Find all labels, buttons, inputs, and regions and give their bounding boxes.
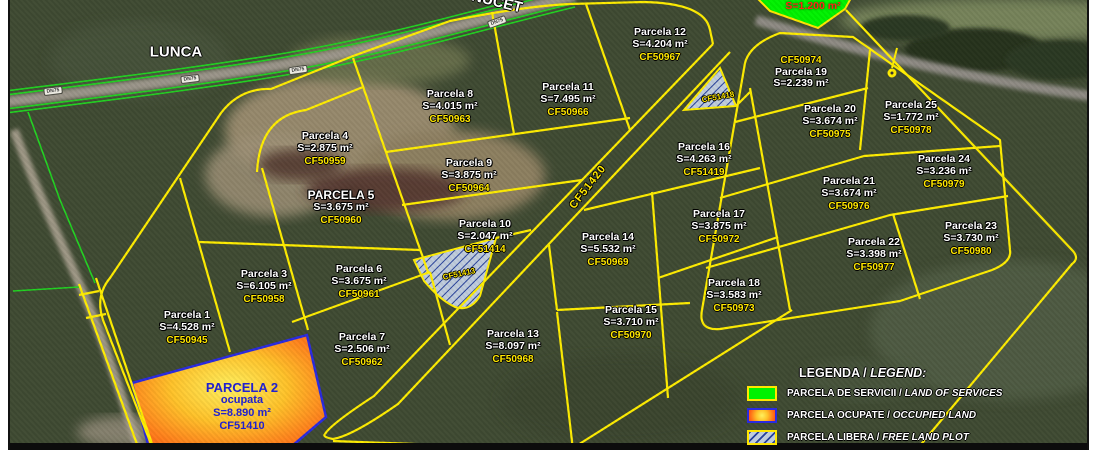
road-sign-dn75: DN75 bbox=[180, 74, 200, 84]
parcel-label-parcela-15: Parcela 15S=3.710 m²CF50970 bbox=[603, 305, 658, 342]
parcel-label-parcela-23: Parcela 23S=3.730 m²CF50980 bbox=[943, 221, 998, 258]
parcel-cf-text: CF50977 bbox=[846, 262, 901, 274]
parcel-cf-text: CF50961 bbox=[331, 289, 386, 301]
occupied-parcel-cf: CF51410 bbox=[206, 420, 278, 433]
parcel-nm-text: Parcela 24 bbox=[916, 154, 971, 166]
parcel-cf-text: CF50962 bbox=[334, 357, 389, 369]
parcel-nm-text: Parcela 9 bbox=[441, 158, 496, 170]
parcel-nm-text: Parcela 16 bbox=[676, 142, 731, 154]
parcel-ar-text: S=2.239 m² bbox=[773, 78, 828, 90]
parcel-ar-text: S=2.875 m² bbox=[297, 142, 352, 154]
parcel-label-parcela-13: Parcela 13S=8.097 m²CF50968 bbox=[485, 329, 540, 366]
occupied-parcel-name: PARCELA 2 bbox=[206, 381, 278, 394]
parcel-label-parcela-5: PARCELA 5S=3.675 m²CF50960 bbox=[308, 190, 375, 227]
parcel-cf-text: CF50964 bbox=[441, 183, 496, 195]
parcel-label-parcela-7: Parcela 7S=2.506 m²CF50962 bbox=[334, 332, 389, 369]
parcel-ar-text: S=3.236 m² bbox=[916, 165, 971, 177]
parcel-label-parcela-3: Parcela 3S=6.105 m²CF50958 bbox=[236, 269, 291, 306]
parcel-nm-text: Parcela 18 bbox=[706, 278, 761, 290]
parcel-cf-text: CF50975 bbox=[802, 129, 857, 141]
parcel-label-parcela-6: Parcela 6S=3.675 m²CF50961 bbox=[331, 264, 386, 301]
parcel-label-parcela-21: Parcela 21S=3.674 m²CF50976 bbox=[821, 176, 876, 213]
parcel-cf-text: CF50976 bbox=[821, 201, 876, 213]
parcel-ar-text: S=3.710 m² bbox=[603, 316, 658, 328]
parcel-ar-text: S=4.263 m² bbox=[676, 153, 731, 165]
legend-label-services: PARCELA DE SERVICII / LAND OF SERVICES bbox=[787, 388, 1002, 399]
legend-item-services: PARCELA DE SERVICII / LAND OF SERVICES bbox=[747, 386, 1002, 401]
parcel-ar-text: S=3.398 m² bbox=[846, 248, 901, 260]
parcel-nm-text: Parcela 22 bbox=[846, 237, 901, 249]
parcel-nm-text: Parcela 10 bbox=[457, 219, 512, 231]
parcel-ar-text: S=3.583 m² bbox=[706, 289, 761, 301]
parcel-label-parcela-12: Parcela 12S=4.204 m²CF50967 bbox=[632, 27, 687, 64]
parcel-ar-text: S=4.204 m² bbox=[632, 38, 687, 50]
parcel-ar-text: S=2.047 m² bbox=[457, 230, 512, 242]
parcel-ar-text: S=5.532 m² bbox=[580, 243, 635, 255]
parcel-nm-text: Parcela 4 bbox=[297, 131, 352, 143]
parcel-label-parcela-24: Parcela 24S=3.236 m²CF50979 bbox=[916, 154, 971, 191]
occupied-parcel-area: S=8.890 m² bbox=[206, 407, 278, 420]
parcel-label-parcela-10: Parcela 10S=2.047 m²CF51414 bbox=[457, 219, 512, 256]
parcel-nm-text: Parcela 17 bbox=[691, 209, 746, 221]
parcel-nm-text: Parcela 6 bbox=[331, 264, 386, 276]
parcel-ar-text: S=3.674 m² bbox=[821, 187, 876, 199]
parcel-nm-text: Parcela 7 bbox=[334, 332, 389, 344]
road-sign-dn75: DN75 bbox=[288, 65, 308, 76]
parcel-ar-text: S=8.097 m² bbox=[485, 340, 540, 352]
legend: LEGENDA / LEGEND: PARCELA DE SERVICII / … bbox=[747, 366, 1002, 450]
free-plot-label-cf51413: CF51413 bbox=[442, 266, 476, 282]
parcel-cf-text: CF51419 bbox=[676, 167, 731, 179]
parcel-ar-text: S=7.495 m² bbox=[540, 93, 595, 105]
parcel-ar-text: S=4.015 m² bbox=[422, 100, 477, 112]
parcel-cf-text: CF50967 bbox=[632, 52, 687, 64]
parcel-cf-text: CF50959 bbox=[297, 156, 352, 168]
parcel-label-parcela-14: Parcela 14S=5.532 m²CF50969 bbox=[580, 232, 635, 269]
parcel-label-parcela-17: Parcela 17S=3.875 m²CF50972 bbox=[691, 209, 746, 246]
parcel-cf-text: CF50945 bbox=[159, 335, 214, 347]
parcel-label-parcela-1: Parcela 1S=4.528 m²CF50945 bbox=[159, 310, 214, 347]
parcel-ar-text: S=3.675 m² bbox=[308, 201, 375, 213]
parcel-cf-text: CF50974 bbox=[773, 55, 828, 67]
left-frame-line bbox=[8, 0, 10, 450]
parcel-cf-text: CF50960 bbox=[308, 215, 375, 227]
parcel-ar-text: S=4.528 m² bbox=[159, 321, 214, 333]
parcel-label-parcela-25: Parcela 25S=1.772 m²CF50978 bbox=[883, 100, 938, 137]
parcel-nm-text: Parcela 11 bbox=[540, 82, 595, 94]
legend-swatch-services bbox=[747, 386, 777, 401]
parcel-ar-text: S=6.105 m² bbox=[236, 280, 291, 292]
parcel-nm-text: Parcela 15 bbox=[603, 305, 658, 317]
parcel-cf-text: CF50979 bbox=[916, 179, 971, 191]
parcel-label-parcela-22: Parcela 22S=3.398 m²CF50977 bbox=[846, 237, 901, 274]
parcel-ar-text: S=3.730 m² bbox=[943, 232, 998, 244]
free-plot-label-cf51418: CF51418 bbox=[701, 90, 735, 105]
road-sign-dn75: DN75 bbox=[43, 86, 63, 96]
parcel-nm-text: Parcela 8 bbox=[422, 89, 477, 101]
right-frame-margin bbox=[1089, 0, 1100, 450]
parcel-label-parcela-9: Parcela 9S=3.875 m²CF50964 bbox=[441, 158, 496, 195]
road-sign-dn75: DN75 bbox=[487, 15, 507, 29]
parcel-cf-text: CF50968 bbox=[485, 354, 540, 366]
parcel-cf-text: CF50973 bbox=[706, 303, 761, 315]
parcel-cf-text: CF50969 bbox=[580, 257, 635, 269]
parcel-cf-text: CF50958 bbox=[236, 294, 291, 306]
parcel-label-parcela-18: Parcela 18S=3.583 m²CF50973 bbox=[706, 278, 761, 315]
legend-label-free: PARCELA LIBERA / FREE LAND PLOT bbox=[787, 432, 969, 443]
legend-item-occupied: PARCELA OCUPATE / OCCUPIED LAND bbox=[747, 408, 1002, 423]
legend-swatch-occupied bbox=[747, 408, 777, 423]
legend-swatch-free bbox=[747, 430, 777, 445]
parcel-nm-text: Parcela 20 bbox=[802, 104, 857, 116]
parcel-ar-text: S=2.506 m² bbox=[334, 343, 389, 355]
left-frame-margin bbox=[0, 0, 8, 450]
parcel-cf-text: CF50980 bbox=[943, 246, 998, 258]
satellite-map-canvas[interactable]: LUNCA NUCET CF51420 Parcela 1S=4.528 m²C… bbox=[10, 0, 1087, 450]
parcel-label-parcela-20: Parcela 20S=3.674 m²CF50975 bbox=[802, 104, 857, 141]
occupied-parcel-status: ocupata bbox=[206, 394, 278, 407]
parcel-ar-text: S=3.875 m² bbox=[691, 220, 746, 232]
parcel-ar-text: S=1.772 m² bbox=[883, 111, 938, 123]
parcel-cf-text: CF50966 bbox=[540, 107, 595, 119]
service-parcel-area-label: S=1.200 m² bbox=[785, 0, 840, 12]
parcel-nm-text: PARCELA 5 bbox=[308, 190, 375, 202]
parcel-nm-text: Parcela 3 bbox=[236, 269, 291, 281]
parcel-nm-text: Parcela 14 bbox=[580, 232, 635, 244]
cadastral-plan-screenshot: LUNCA NUCET CF51420 Parcela 1S=4.528 m²C… bbox=[0, 0, 1100, 450]
legend-item-free: PARCELA LIBERA / FREE LAND PLOT bbox=[747, 430, 1002, 445]
parcel-nm-text: Parcela 13 bbox=[485, 329, 540, 341]
legend-title: LEGENDA / LEGEND: bbox=[799, 366, 1002, 380]
parcel-cf-text: CF50978 bbox=[883, 125, 938, 137]
parcel-nm-text: Parcela 1 bbox=[159, 310, 214, 322]
occupied-parcel-label: PARCELA 2 ocupata S=8.890 m² CF51410 bbox=[206, 381, 278, 433]
parcel-label-parcela-8: Parcela 8S=4.015 m²CF50963 bbox=[422, 89, 477, 126]
parcel-cf-text: CF50963 bbox=[422, 114, 477, 126]
parcel-cf-text: CF51414 bbox=[457, 244, 512, 256]
legend-label-occupied: PARCELA OCUPATE / OCCUPIED LAND bbox=[787, 410, 976, 421]
parcel-label-parcela-11: Parcela 11S=7.495 m²CF50966 bbox=[540, 82, 595, 119]
parcel-label-parcela-4: Parcela 4S=2.875 m²CF50959 bbox=[297, 131, 352, 168]
road-parcel-ref-label: CF51420 bbox=[567, 163, 609, 212]
parcel-label-parcela-16: Parcela 16S=4.263 m²CF51419 bbox=[676, 142, 731, 179]
legend-rows: PARCELA DE SERVICII / LAND OF SERVICESPA… bbox=[747, 386, 1002, 445]
parcel-label-parcela-19: CF50974Parcela 19S=2.239 m² bbox=[773, 53, 828, 90]
parcel-nm-text: Parcela 12 bbox=[632, 27, 687, 39]
place-label-lunca: LUNCA bbox=[150, 44, 203, 61]
parcel-nm-text: Parcela 21 bbox=[821, 176, 876, 188]
parcel-ar-text: S=3.875 m² bbox=[441, 169, 496, 181]
parcel-ar-text: S=3.675 m² bbox=[331, 275, 386, 287]
parcel-nm-text: Parcela 23 bbox=[943, 221, 998, 233]
parcel-ar-text: S=3.674 m² bbox=[802, 115, 857, 127]
parcel-nm-text: Parcela 25 bbox=[883, 100, 938, 112]
parcel-cf-text: CF50970 bbox=[603, 330, 658, 342]
parcel-cf-text: CF50972 bbox=[691, 234, 746, 246]
place-label-nucet: NUCET bbox=[470, 0, 524, 16]
